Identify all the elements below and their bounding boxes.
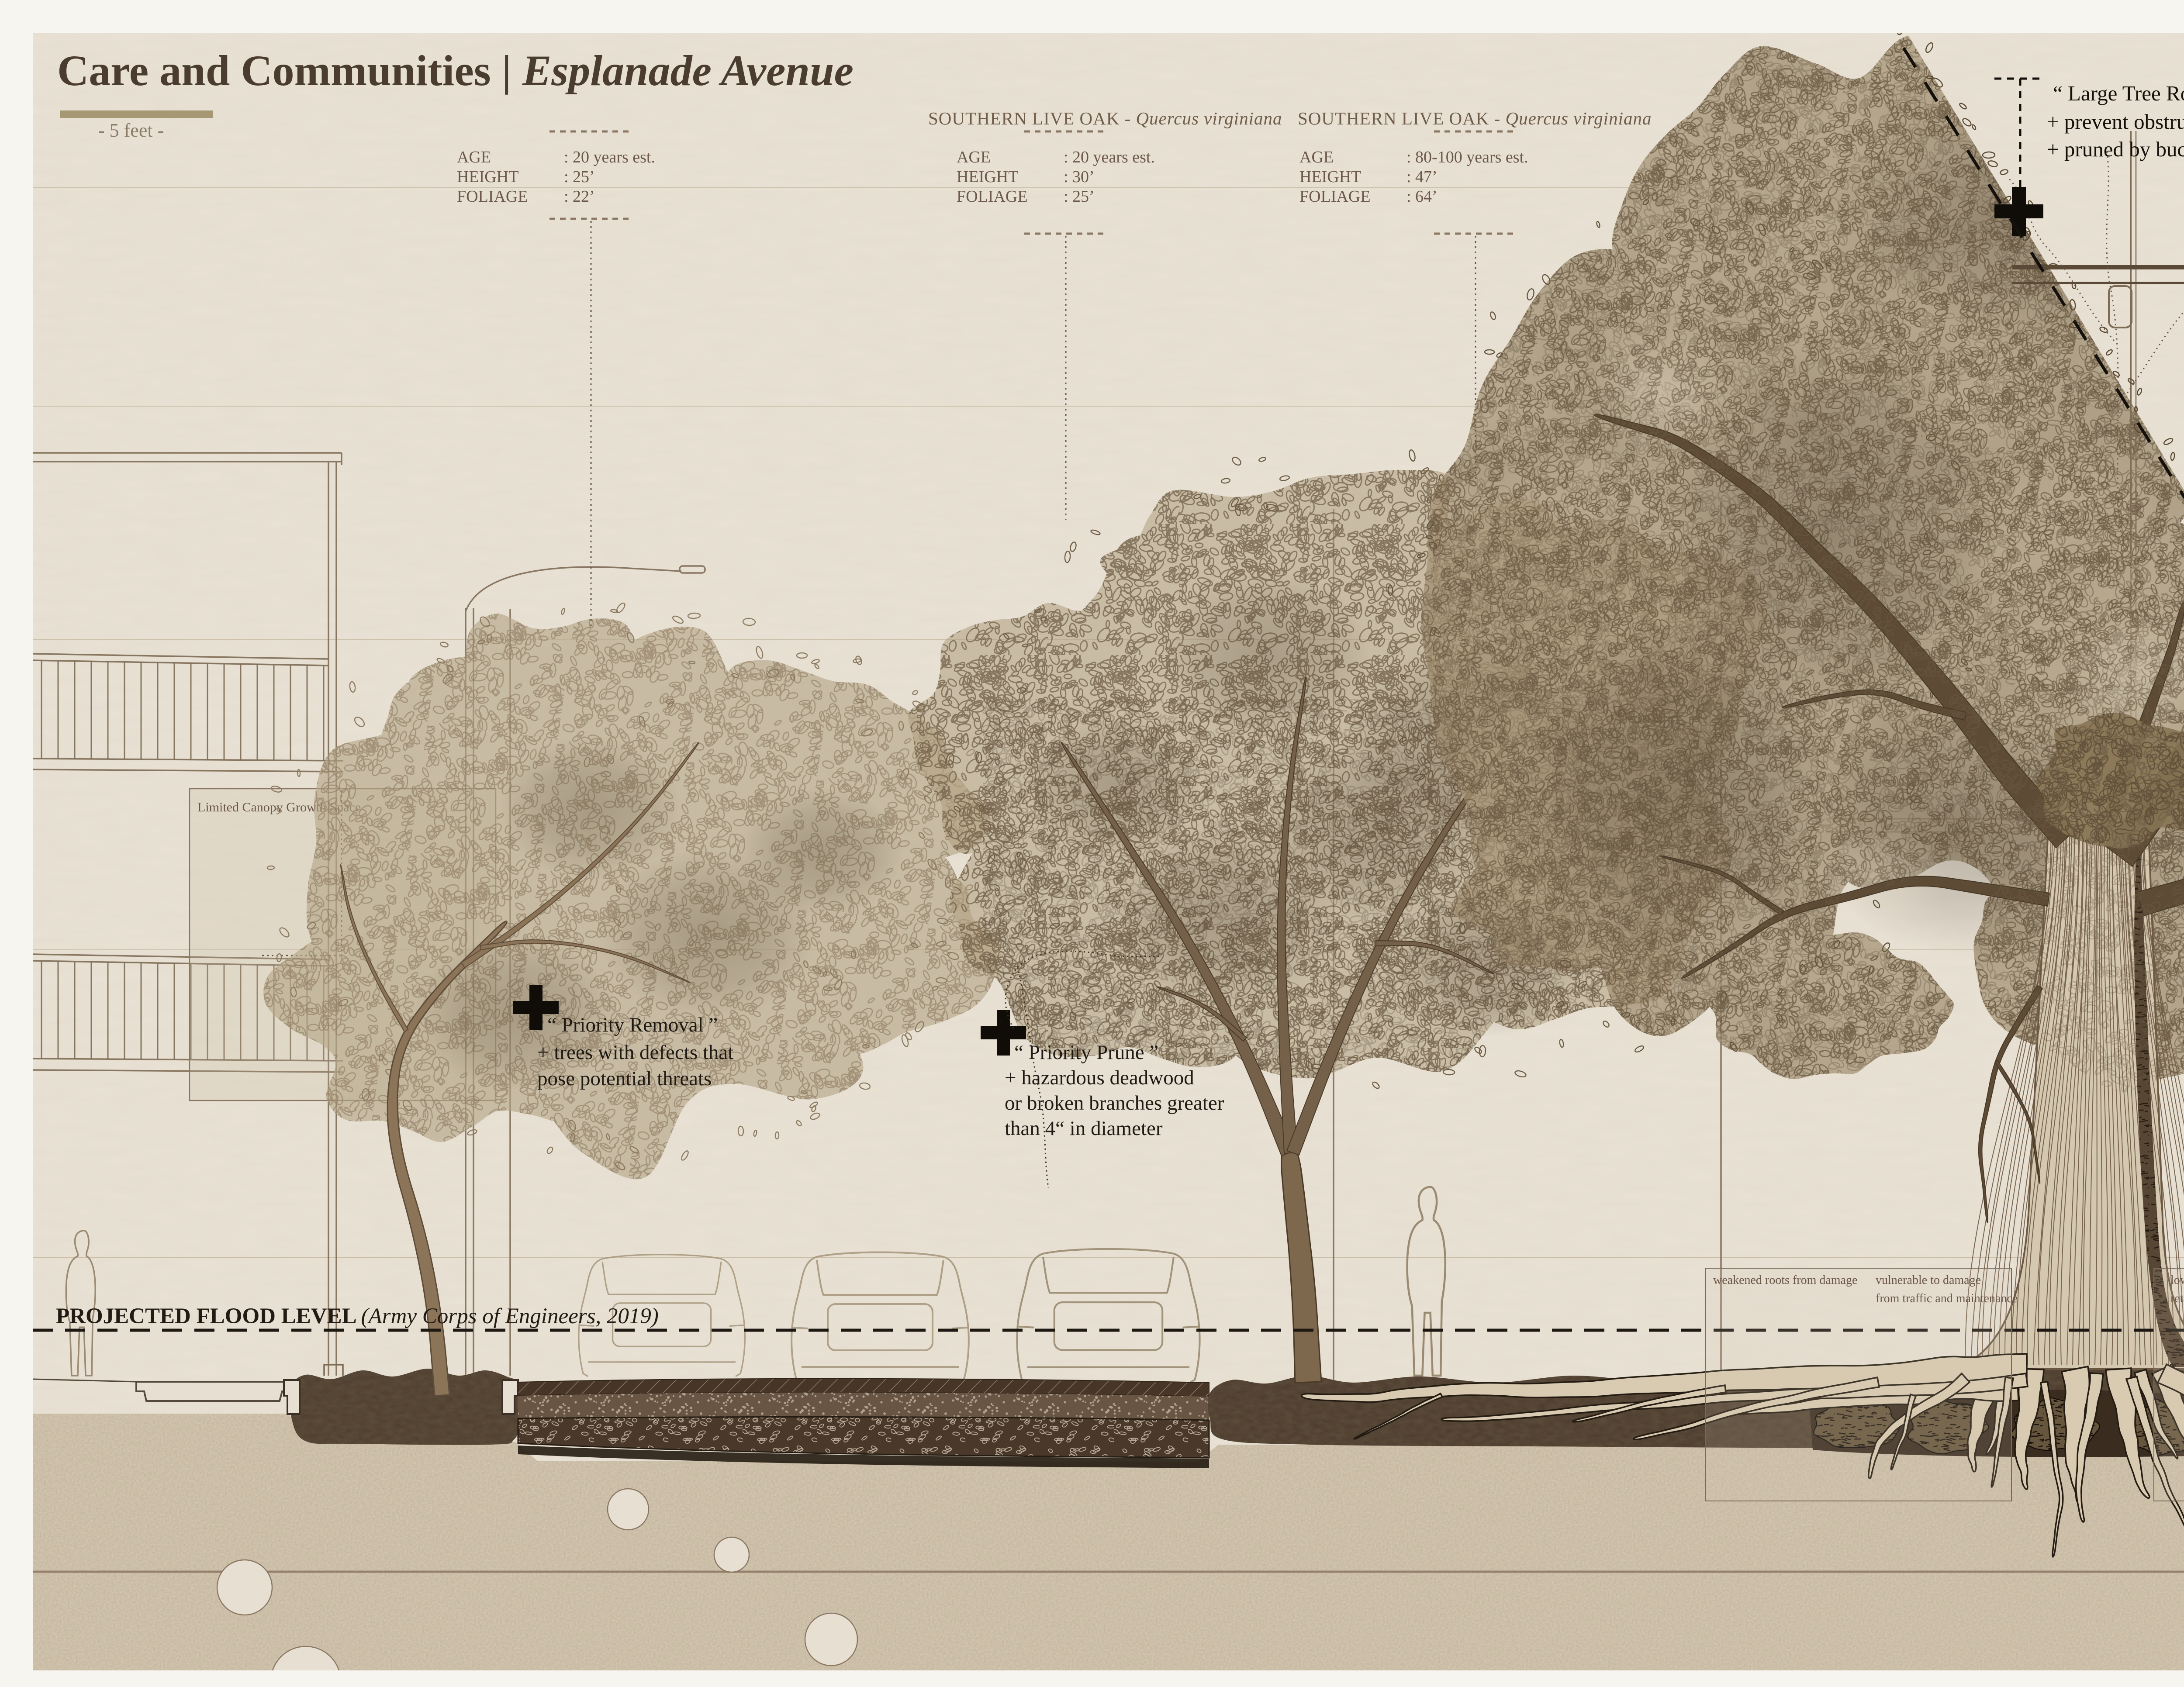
- svg-text:AGE: AGE: [1299, 148, 1334, 166]
- svg-text:from traffic and maintenance: from traffic and maintenance: [1876, 1292, 2018, 1305]
- svg-text:: 80-100 years est.: : 80-100 years est.: [1406, 148, 1528, 166]
- svg-text:Care and Communities | Esplana: Care and Communities | Esplanade Avenue: [57, 46, 854, 95]
- svg-text:than 4“ in diameter: than 4“ in diameter: [1005, 1117, 1163, 1140]
- svg-text:- 5 feet -: - 5 feet -: [98, 120, 164, 141]
- svg-text:HEIGHT: HEIGHT: [957, 168, 1018, 186]
- svg-text:: 47’: : 47’: [1406, 168, 1438, 186]
- svg-text:SOUTHERN LIVE OAK - Quercus vi: SOUTHERN LIVE OAK - Quercus virginiana: [928, 108, 1282, 128]
- svg-text:+ hazardous deadwood: + hazardous deadwood: [1005, 1066, 1194, 1089]
- svg-text:vulnerable to damage: vulnerable to damage: [1876, 1273, 1981, 1287]
- svg-text:FOLIAGE: FOLIAGE: [457, 187, 528, 206]
- svg-text:: 22’: : 22’: [564, 187, 595, 206]
- svg-text:: 25’: : 25’: [564, 168, 595, 186]
- svg-text:: 20 years est.: : 20 years est.: [564, 148, 655, 166]
- svg-text:FOLIAGE: FOLIAGE: [1299, 187, 1371, 206]
- svg-text:AGE: AGE: [957, 148, 991, 166]
- svg-text:: 64’: : 64’: [1406, 187, 1438, 206]
- svg-text:HEIGHT: HEIGHT: [1299, 168, 1361, 186]
- svg-text:retain water: retain water: [2170, 1292, 2184, 1305]
- svg-text:+ prevent obstruction of utili: + prevent obstruction of utilities.: [2047, 110, 2184, 134]
- svg-text:weakened roots from damage: weakened roots from damage: [1713, 1273, 1857, 1287]
- svg-text:HEIGHT: HEIGHT: [457, 168, 518, 186]
- svg-text:: 25’: : 25’: [1064, 187, 1095, 206]
- svg-text:: 20 years est.: : 20 years est.: [1064, 148, 1155, 166]
- svg-text:+ pruned by bucket truck: + pruned by bucket truck: [2047, 137, 2184, 161]
- svg-text:pose potential threats: pose potential threats: [537, 1067, 712, 1090]
- svg-text:lower ability to: lower ability to: [2170, 1273, 2184, 1287]
- svg-text:“ Priority Prune ”: “ Priority Prune ”: [1014, 1041, 1158, 1064]
- svg-text:AGE: AGE: [457, 148, 491, 166]
- svg-text:FOLIAGE: FOLIAGE: [957, 187, 1028, 206]
- svg-text:SOUTHERN LIVE OAK - Quercus vi: SOUTHERN LIVE OAK - Quercus virginiana: [1298, 108, 1652, 128]
- svg-text:“ Priority Removal ”: “ Priority Removal ”: [547, 1014, 718, 1036]
- svg-text:or broken branches greater: or broken branches greater: [1005, 1092, 1224, 1114]
- svg-text:PROJECTED FLOOD LEVEL (Army Co: PROJECTED FLOOD LEVEL (Army Corps of Eng…: [56, 1304, 659, 1328]
- svg-text:+ trees with defects that: + trees with defects that: [537, 1041, 733, 1064]
- svg-text:: 30’: : 30’: [1064, 168, 1095, 186]
- svg-text:“ Large Tree Routine Prune ”: “ Large Tree Routine Prune ”: [2053, 81, 2184, 105]
